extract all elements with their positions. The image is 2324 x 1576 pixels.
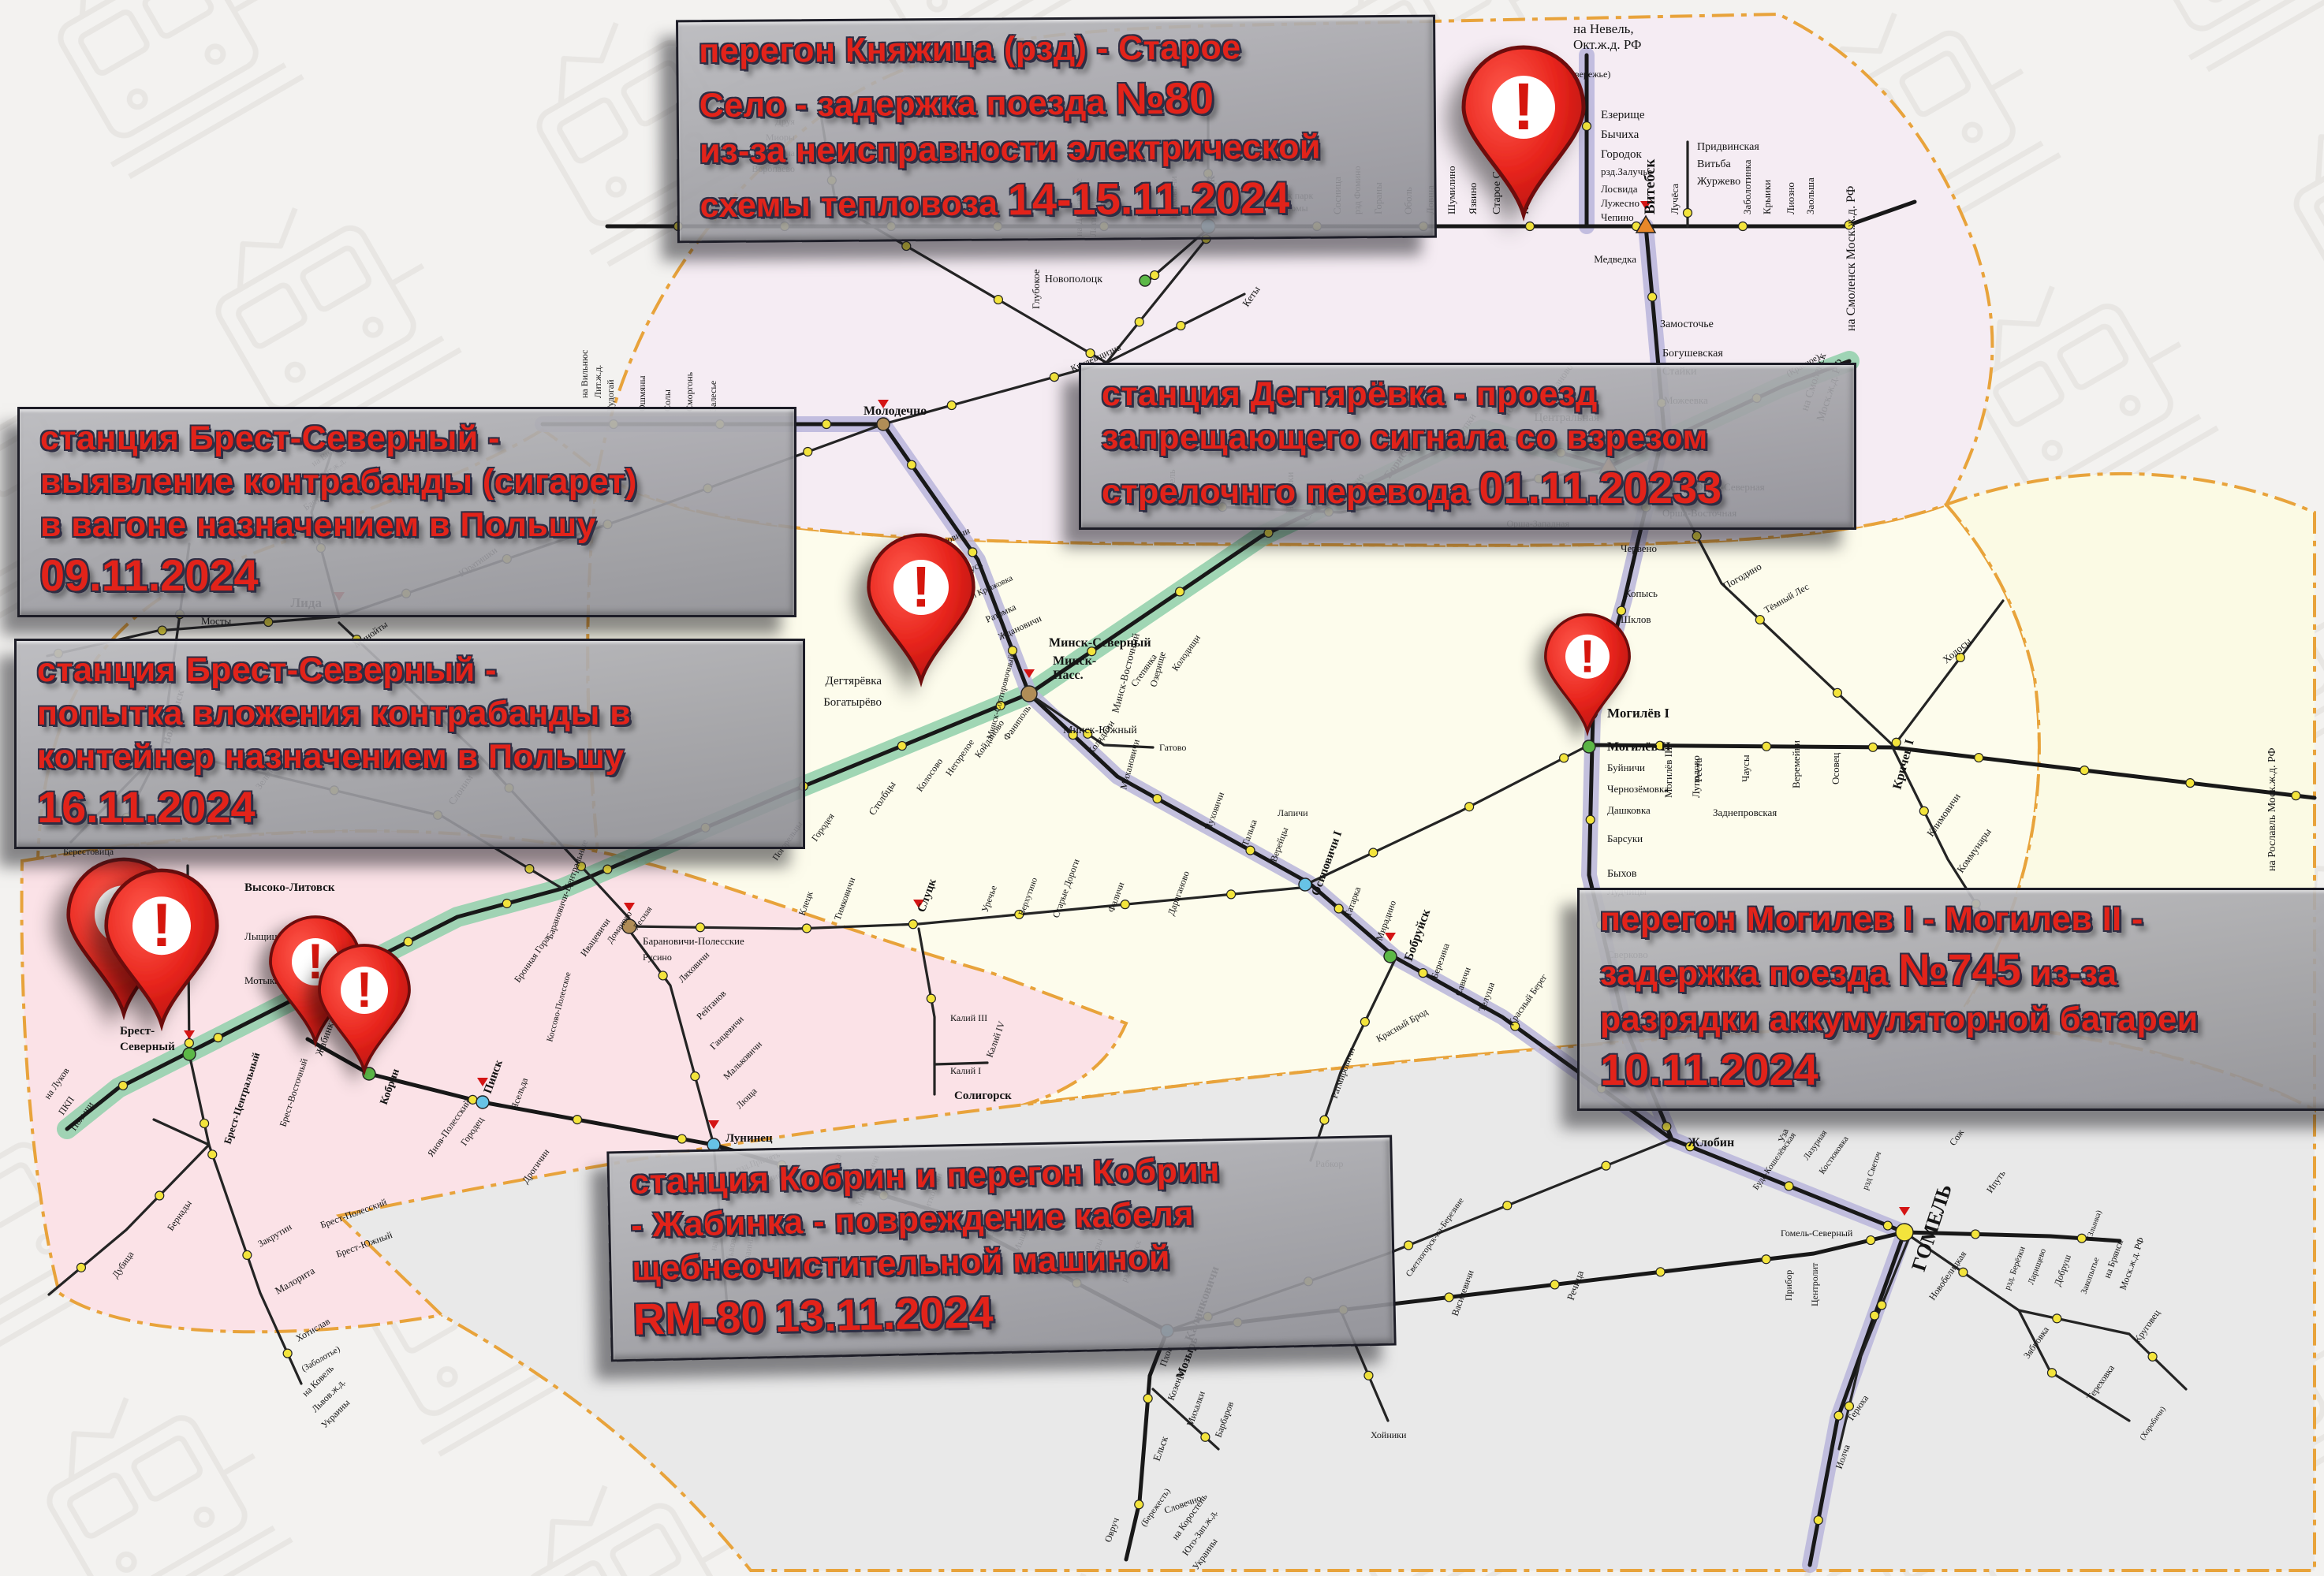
station-dot <box>802 924 811 933</box>
station-dot <box>1050 373 1058 382</box>
callout-text-line: разрядки аккумуляторной батареи <box>1600 998 2324 1041</box>
callout-text-line: 16.11.2024 <box>37 779 782 836</box>
station-dot <box>994 296 1002 304</box>
station-label: Могилёв I <box>1607 706 1669 721</box>
station-label: Лосвида <box>1601 183 1638 195</box>
station-dot <box>902 242 911 251</box>
station-dot <box>1151 271 1159 280</box>
station-label: Дегтярёвка <box>826 675 882 687</box>
station-label: на Вильнюс <box>579 350 590 398</box>
callout-text-line: станция Брест-Северный - <box>37 649 782 692</box>
station-dot <box>1320 1116 1329 1124</box>
station-dot <box>1656 1268 1665 1276</box>
station-label: Копысь <box>1625 587 1658 599</box>
station-label: Чаусы <box>1740 754 1751 782</box>
station-dot <box>1684 209 1692 218</box>
callout-text-line: схемы тепловоза 14-15.11.2024 <box>699 168 1413 229</box>
station-label: Богушевская <box>1662 348 1723 360</box>
station-dot <box>1692 531 1701 540</box>
station-dot <box>1360 1018 1369 1026</box>
station-label: Быхов <box>1607 868 1637 880</box>
station-dot <box>1959 1268 1968 1276</box>
station-label: Замосточье <box>1660 319 1714 330</box>
station-dot <box>1227 890 1236 899</box>
station-dot <box>158 626 166 635</box>
station-dot <box>908 920 917 929</box>
station-dot <box>264 618 273 627</box>
station-dot <box>1892 738 1901 747</box>
station-label: Глубокое <box>1030 269 1042 309</box>
station-dot <box>1785 1182 1793 1190</box>
station-dot <box>1919 807 1928 815</box>
junction-dot <box>1021 686 1037 702</box>
incident-callout-degtyaryovka: станция Дегтярёвка - проезд запрещающего… <box>1079 363 1856 530</box>
station-dot <box>1369 848 1378 857</box>
station-dot <box>804 447 812 456</box>
station-dot <box>1975 754 1983 762</box>
station-dot <box>1648 292 1657 301</box>
station-dot <box>1404 1241 1413 1250</box>
station-dot <box>2053 1314 2061 1323</box>
station-label: на Рославль Моск.ж.д. РФ <box>2266 747 2278 871</box>
station-dot <box>1201 1433 1210 1441</box>
station-label: Городок <box>1601 148 1643 161</box>
station-label: Барановичи-Полесские <box>643 935 744 947</box>
station-dot <box>1814 1516 1822 1525</box>
station-label: Медведка <box>1594 253 1636 265</box>
station-label: Витебск <box>1642 159 1658 214</box>
station-dot <box>908 460 916 469</box>
station-label: Новополоцк <box>1045 274 1102 285</box>
station-dot <box>1662 1122 1671 1131</box>
station-dot <box>968 548 977 557</box>
station-label: Лунинец <box>726 1132 773 1145</box>
station-dot <box>1883 1221 1892 1230</box>
station-label: Калий III <box>950 1012 987 1023</box>
station-dot <box>1143 1394 1152 1403</box>
station-dot <box>119 1081 128 1090</box>
junction-dot <box>476 1096 489 1108</box>
station-dot <box>1560 754 1569 762</box>
callout-text-line: стрелочнго перевода 01.11.20233 <box>1102 460 1833 516</box>
exclamation-icon: ! <box>1580 631 1595 682</box>
station-dot <box>185 1038 193 1047</box>
exclamation-icon: ! <box>356 963 373 1018</box>
station-label: Осовец <box>1830 753 1841 784</box>
station-label: Окт.ж.д. РФ <box>1573 37 1641 52</box>
station-dot <box>1177 322 1185 330</box>
station-dot <box>1762 1255 1770 1264</box>
station-label: Лужесно <box>1601 197 1639 209</box>
station-label: Хойники <box>1371 1429 1407 1440</box>
station-label: Солигорск <box>954 1090 1012 1102</box>
station-dot <box>1971 1230 1979 1239</box>
station-label: Крыики <box>1761 180 1773 214</box>
station-label: на Смоленск Моск.ж.д. РФ <box>1845 186 1858 331</box>
incident-callout-brest-1: станция Брест-Северный - выявление контр… <box>17 407 796 617</box>
junction-dot <box>183 1048 196 1060</box>
station-label: Лучёса <box>1669 184 1681 214</box>
station-label: Придвинская <box>1697 141 1759 153</box>
station-dot <box>76 1263 85 1272</box>
callout-text-line: 10.11.2024 <box>1600 1041 2324 1098</box>
station-label: Молодечно <box>864 404 927 418</box>
station-dot <box>696 923 704 932</box>
rail-line-branch <box>934 1063 987 1064</box>
station-dot <box>1550 1280 1559 1289</box>
station-label: Прибор <box>1783 1270 1794 1301</box>
station-dot <box>677 1134 686 1143</box>
station-label: Буйничи <box>1607 762 1645 773</box>
station-dot <box>404 937 412 946</box>
station-dot <box>1868 743 1877 751</box>
station-label: Могилёв II <box>1607 740 1671 754</box>
station-dot <box>2047 1369 2056 1377</box>
station-dot <box>502 899 511 907</box>
station-dot <box>927 994 935 1003</box>
station-dot <box>947 401 956 410</box>
callout-text-line: попытка вложения контрабанды в <box>37 692 782 736</box>
station-dot <box>1419 969 1427 978</box>
map-stage: на Невель,Окт.ж.д. РФ(Завережье)ЕзерищеБ… <box>0 0 2324 1576</box>
station-label: Чернозёмовка <box>1607 783 1669 795</box>
station-label: Северный <box>120 1041 175 1053</box>
station-label: Веремейки <box>1790 740 1802 788</box>
station-dot <box>1009 646 1017 655</box>
station-dot <box>2148 1352 2157 1361</box>
junction-dot <box>1299 878 1311 891</box>
station-label: Могилёв III <box>1662 747 1674 798</box>
station-label: на Невель, <box>1573 21 1634 36</box>
station-label: Минск- <box>1053 654 1096 668</box>
station-dot <box>603 865 612 874</box>
exclamation-icon: ! <box>912 554 931 620</box>
callout-text-line: станция Брест-Северный - <box>40 417 774 460</box>
station-dot <box>283 1349 292 1358</box>
station-dot <box>2080 766 2089 775</box>
callout-text-line: станция Дегтярёвка - проезд <box>1102 373 1833 416</box>
station-dot <box>1739 222 1748 231</box>
station-label: Русино <box>643 952 672 963</box>
station-dot <box>1583 122 1591 131</box>
station-label: Лиозно <box>1785 182 1796 214</box>
station-label: Лапичи <box>1278 807 1308 818</box>
callout-text-line: перегон Княжица (рзд) - Старое <box>699 25 1412 73</box>
station-dot <box>823 420 831 429</box>
station-dot <box>897 742 906 751</box>
station-label: Дашковка <box>1607 804 1651 816</box>
station-label: Лит.ж.д. <box>592 365 603 398</box>
station-dot <box>691 1072 699 1081</box>
incident-callout-knyazhitsa: перегон Княжица (рзд) - Старое Село - за… <box>676 15 1437 244</box>
station-label: Язвино <box>1467 183 1479 214</box>
station-dot <box>2292 792 2300 800</box>
station-dot <box>1833 688 1841 697</box>
station-dot <box>1586 815 1595 824</box>
callout-text-line: Село - задержка поезда №80 <box>699 69 1412 130</box>
station-label: Чепино <box>1601 211 1634 223</box>
callout-text-line: запрещающего сигнала со взрезом <box>1102 416 1833 460</box>
station-dot <box>1121 900 1129 909</box>
junction-dot <box>1896 1224 1913 1241</box>
station-label: Бычиха <box>1601 129 1639 141</box>
station-label: Калий I <box>950 1065 981 1076</box>
incident-callout-kobrin: станция Кобрин и перегон Кобрин - Жабинк… <box>606 1135 1396 1362</box>
callout-text-line: 09.11.2024 <box>40 547 774 604</box>
station-dot <box>200 1119 209 1127</box>
station-label: Барсуки <box>1607 833 1643 844</box>
station-label: Гомель-Северный <box>1781 1228 1853 1239</box>
junction-dot <box>1583 740 1595 753</box>
station-dot <box>1602 1161 1610 1170</box>
junction-dot <box>1140 275 1151 286</box>
station-label: Езерище <box>1601 109 1645 121</box>
junction-dot <box>877 418 890 430</box>
station-dot <box>1364 1371 1373 1380</box>
station-dot <box>2077 1234 2086 1243</box>
station-label: Заольша <box>1804 177 1816 214</box>
station-label: Шумилино <box>1446 166 1457 214</box>
station-dot <box>1878 1301 1886 1310</box>
station-dot <box>2186 779 2195 788</box>
exclamation-icon: ! <box>151 892 172 959</box>
station-label: Пасс. <box>1053 669 1084 682</box>
incident-callout-mogilev: перегон Могилев I - Могилев II - задержк… <box>1577 888 2324 1111</box>
station-label: Заболотинка <box>1741 159 1753 214</box>
station-label: Высоко-Литовск <box>244 881 335 894</box>
station-dot <box>208 1150 217 1159</box>
station-dot <box>214 1034 222 1042</box>
exclamation-icon: ! <box>1513 69 1535 143</box>
station-dot <box>658 971 667 980</box>
station-label: Центролит <box>1809 1262 1820 1306</box>
station-dot <box>1135 318 1143 326</box>
station-label: Журжево <box>1697 176 1740 188</box>
callout-text-line: перегон Могилев I - Могилев II - <box>1600 898 2324 941</box>
station-dot <box>155 1191 164 1200</box>
callout-text-line: контейнер назначением в Польшу <box>37 736 782 779</box>
station-dot <box>573 1116 581 1124</box>
station-label: Брест- <box>120 1025 155 1038</box>
station-dot <box>1153 795 1162 803</box>
station-dot <box>1762 742 1770 751</box>
station-dot <box>1334 904 1343 913</box>
station-label: Гатово <box>1159 742 1186 753</box>
callout-text-line: в вагоне назначением в Польшу <box>40 504 774 547</box>
incident-callout-brest-2: станция Брест-Северный - попытка вложени… <box>14 639 805 849</box>
station-dot <box>1526 222 1535 231</box>
station-dot <box>1834 1411 1843 1420</box>
station-dot <box>1465 803 1474 811</box>
station-label: Богатырёво <box>823 696 882 709</box>
junction-dot <box>1384 950 1397 963</box>
callout-text-line: задержка поезда №745 из-за <box>1600 941 2324 998</box>
station-dot <box>1264 528 1273 537</box>
station-label: Жлобин <box>1688 1136 1734 1149</box>
station-label: Червено <box>1621 542 1657 554</box>
station-dot <box>243 1250 252 1259</box>
callout-text-line: выявление контрабанды (сигарет) <box>40 460 774 504</box>
station-dot <box>1871 1311 1879 1320</box>
station-label: Сморгонь <box>684 371 695 412</box>
station-label: Заднепровская <box>1713 807 1777 818</box>
station-dot <box>1135 1500 1143 1509</box>
station-dot <box>1867 1236 1875 1245</box>
station-dot <box>1503 1202 1512 1210</box>
station-dot <box>1755 616 1764 624</box>
station-label: Витьба <box>1697 158 1731 170</box>
station-label: Реста <box>1692 758 1704 782</box>
station-label: Шклов <box>1621 613 1651 625</box>
station-dot <box>525 864 534 873</box>
callout-text-line: из-за неисправности электрической <box>699 125 1413 173</box>
station-dot <box>1445 1293 1453 1302</box>
station-dot <box>1176 587 1184 596</box>
